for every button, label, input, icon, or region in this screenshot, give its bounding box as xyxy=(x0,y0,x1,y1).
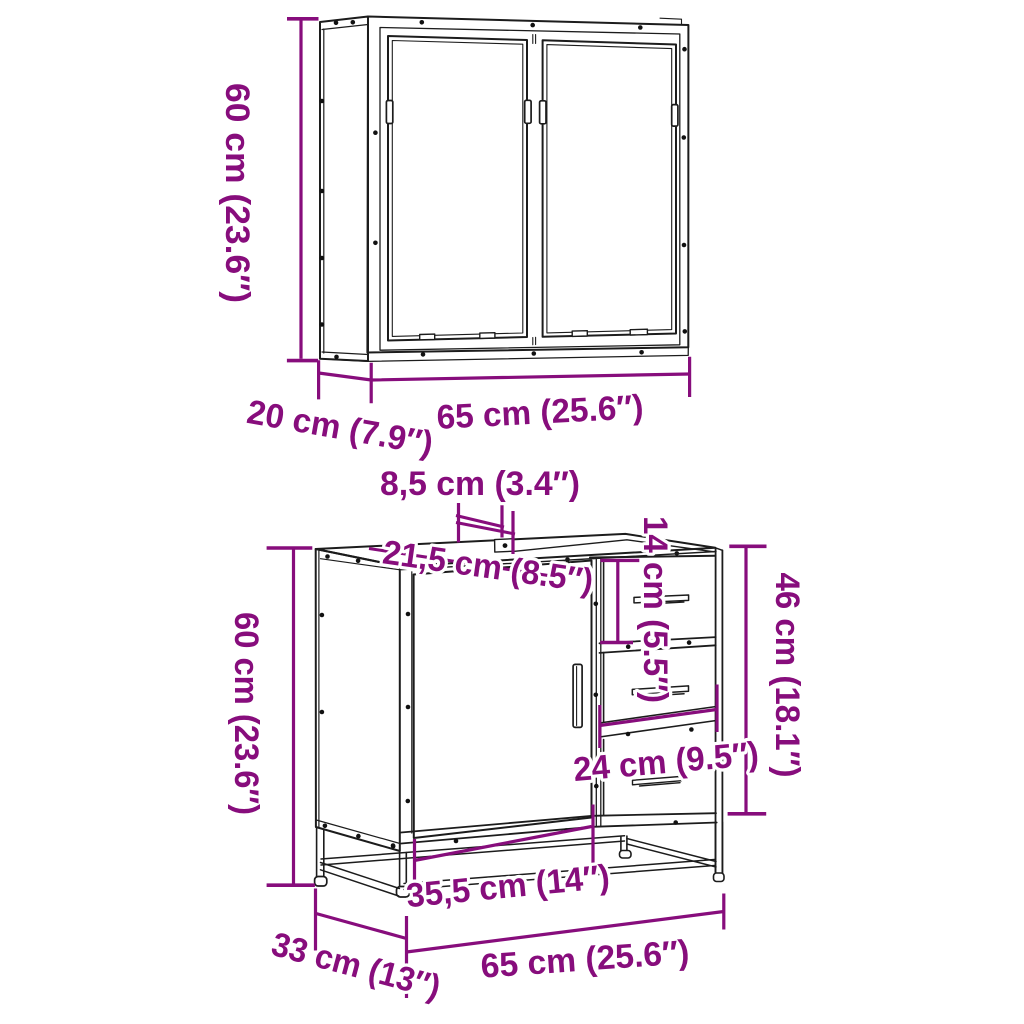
svg-text:60 cm (23.6″): 60 cm (23.6″) xyxy=(218,83,256,303)
svg-text:60 cm (23.6″): 60 cm (23.6″) xyxy=(227,612,265,815)
svg-text:46 cm (18.1″): 46 cm (18.1″) xyxy=(768,573,806,778)
svg-text:8,5 cm (3.4″): 8,5 cm (3.4″) xyxy=(380,465,580,503)
svg-text:14 cm (5.5″): 14 cm (5.5″) xyxy=(636,516,674,703)
